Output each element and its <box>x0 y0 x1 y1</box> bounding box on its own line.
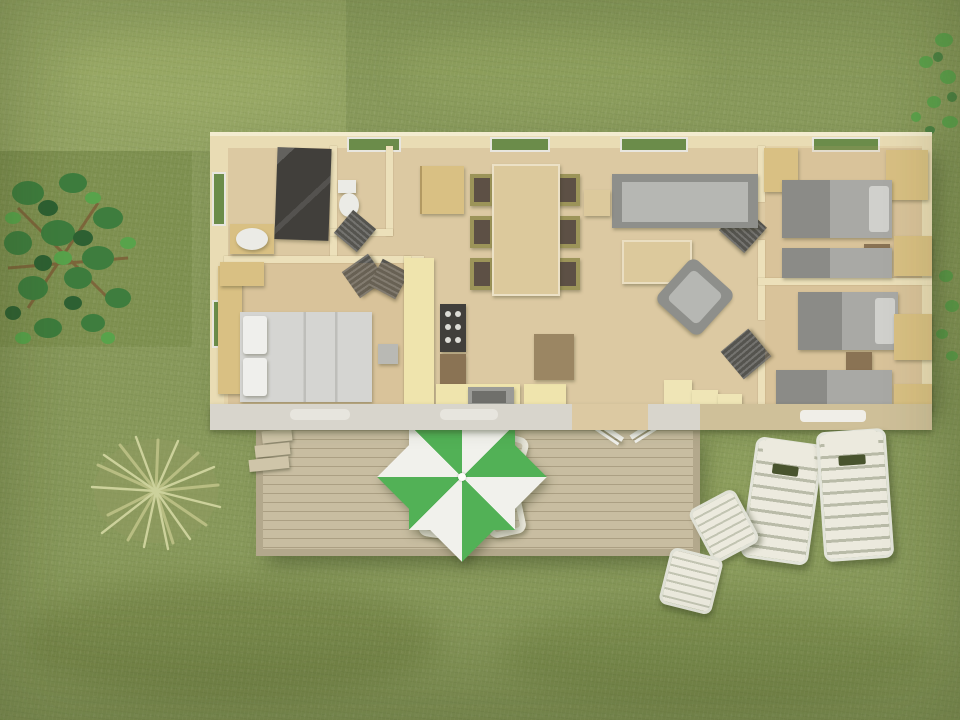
sun-lounger <box>740 436 824 566</box>
hall-wardrobe <box>420 166 464 214</box>
mobile-home <box>210 132 932 410</box>
wall-vent <box>290 409 350 420</box>
washbasin <box>236 228 268 250</box>
dining-table <box>492 164 560 296</box>
open-door-wc <box>334 210 376 252</box>
bedroom-2-wardrobe <box>886 150 928 200</box>
bedroom-2-wardrobe <box>894 236 932 276</box>
shower-cabin <box>274 147 331 241</box>
kitchen-wall-counter <box>404 258 434 410</box>
wall-bedrooms-divider <box>758 278 932 285</box>
single-bed <box>782 248 892 278</box>
grass-blob <box>500 600 930 710</box>
sun-lounger <box>816 428 895 563</box>
grass-patch-top-left <box>0 0 346 152</box>
kitchen-bar-unit <box>534 334 574 380</box>
shrub-sprigs-top-right <box>886 22 960 140</box>
oven-cabinet <box>440 354 466 386</box>
single-bed <box>776 370 892 408</box>
wall-wc-right <box>386 146 393 236</box>
living-side-table <box>584 190 610 216</box>
window-dining <box>490 137 550 152</box>
bed-pillow <box>243 316 267 354</box>
master-side-table <box>378 344 398 364</box>
stove-burners <box>442 308 464 348</box>
grass-blob <box>60 30 320 120</box>
deck-door-opening <box>572 404 648 430</box>
single-bed <box>798 292 898 350</box>
grass-blob <box>400 30 700 110</box>
garden-chair <box>658 546 724 615</box>
dining-chair <box>470 216 494 248</box>
parasol <box>402 417 522 537</box>
grass-blob <box>20 580 440 700</box>
window-bedroom-2 <box>812 137 880 152</box>
single-bed <box>782 180 892 238</box>
aerial-scene <box>0 0 960 720</box>
window-bathroom-side <box>212 172 226 226</box>
master-dresser <box>220 262 264 286</box>
bed-pillow <box>243 358 267 396</box>
dining-chair <box>470 258 494 290</box>
bedroom-3-wardrobe <box>894 314 932 360</box>
toilet-tank <box>338 180 356 193</box>
dining-chair <box>470 174 494 206</box>
sofa-seat <box>622 182 748 222</box>
tree <box>0 148 163 363</box>
parasol-pole <box>458 473 466 481</box>
window-living <box>620 137 688 152</box>
ornamental-grass-bush <box>78 425 238 565</box>
wall-vent <box>800 410 866 422</box>
wall-vent <box>440 409 498 420</box>
